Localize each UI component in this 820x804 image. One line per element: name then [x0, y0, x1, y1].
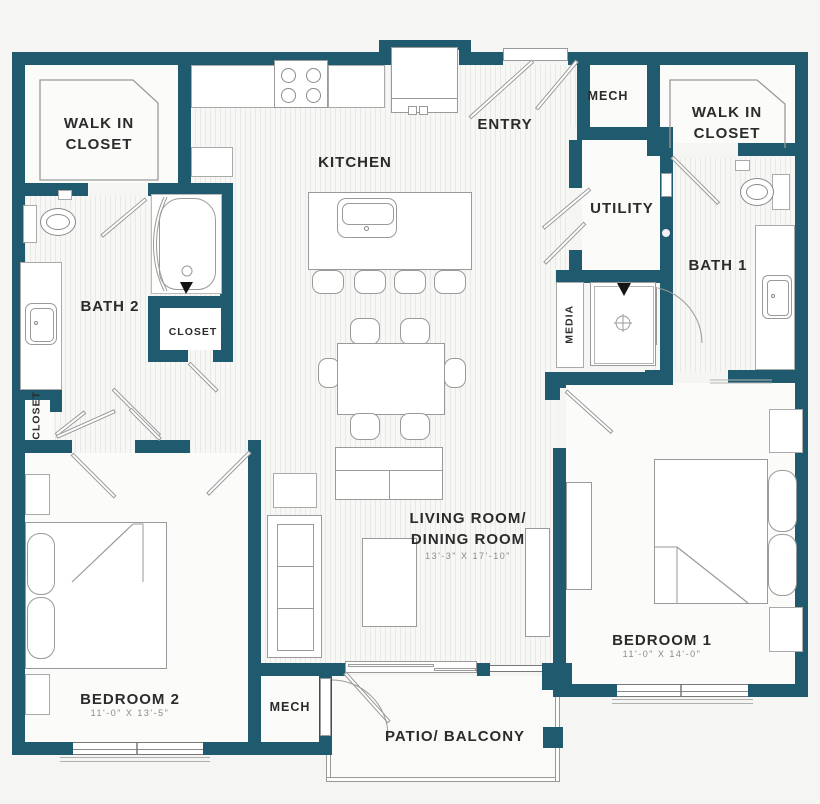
- pillow-icon: [27, 597, 55, 659]
- wall-segment: [471, 52, 503, 65]
- toilet-paper-icon: [58, 190, 72, 200]
- wall-segment: [728, 370, 795, 383]
- window-sill-bedroom1: [612, 699, 753, 704]
- wall-segment: [647, 143, 672, 156]
- sliding-door-patio: [345, 661, 477, 673]
- label-walk-in-closet-left: WALK IN CLOSET: [29, 113, 169, 155]
- wall-segment: [569, 140, 582, 188]
- sofa: [267, 515, 322, 658]
- entry-door: [503, 48, 568, 61]
- wall-segment: [50, 398, 62, 412]
- label-utility: UTILITY: [561, 198, 683, 219]
- dimension-bedroom1: 11'-0" X 14'-0": [592, 649, 732, 659]
- label-bedroom1: BEDROOM 1: [592, 630, 732, 651]
- dining-chair: [400, 318, 430, 345]
- bath1-sink-icon: [762, 275, 792, 319]
- patio-railing-bottom: [326, 777, 560, 782]
- wall-segment: [553, 684, 617, 697]
- window-bedroom1: [617, 684, 748, 697]
- label-bedroom2: BEDROOM 2: [60, 689, 200, 710]
- kitchen-counter: [328, 65, 385, 108]
- bar-stool: [434, 270, 466, 294]
- wall-segment: [203, 742, 332, 755]
- bed: [654, 459, 768, 604]
- nightstand: [769, 607, 803, 652]
- loveseat: [335, 447, 443, 500]
- toilet-bowl-icon: [740, 178, 774, 206]
- wall-segment: [645, 370, 667, 383]
- pillow-icon: [768, 534, 797, 596]
- label-closet-hall: CLOSET: [153, 325, 233, 340]
- toilet-bowl-icon: [40, 208, 76, 236]
- label-bath2: BATH 2: [50, 296, 170, 317]
- pillow-icon: [768, 470, 797, 532]
- wall-segment: [12, 52, 25, 755]
- stove-icon: [274, 60, 328, 108]
- dresser: [566, 482, 592, 590]
- wall-segment: [459, 40, 471, 65]
- toilet-tank-icon: [23, 205, 37, 243]
- wall-segment: [477, 663, 490, 676]
- dining-table: [337, 343, 445, 415]
- wall-segment: [135, 440, 190, 453]
- wall-segment: [748, 684, 808, 697]
- label-walk-in-closet-right: WALK IN CLOSET: [657, 102, 797, 144]
- dimension-living-dining: 13'-3" X 17'-10": [388, 551, 548, 561]
- dining-chair: [350, 318, 380, 345]
- window-sill-bedroom2: [60, 757, 210, 762]
- window-bedroom2: [73, 742, 203, 755]
- label-kitchen: KITCHEN: [285, 152, 425, 173]
- label-entry: ENTRY: [445, 114, 565, 135]
- wall-segment: [12, 742, 73, 755]
- kitchen-counter: [191, 65, 275, 108]
- side-table: [273, 473, 317, 508]
- label-media: MEDIA: [563, 294, 578, 354]
- wall-segment: [795, 52, 808, 697]
- bar-stool: [312, 270, 344, 294]
- nightstand: [25, 474, 50, 515]
- toilet-paper-icon: [735, 160, 750, 171]
- bathtub-icon: [151, 194, 222, 294]
- island-sink-icon: [337, 198, 397, 238]
- label-bath1: BATH 1: [658, 255, 778, 276]
- dimension-bedroom2: 11'-0" X 13'-5": [60, 708, 200, 718]
- label-closet-left: CLOSET: [30, 385, 45, 445]
- patio-post: [543, 727, 563, 748]
- wall-segment: [738, 143, 795, 156]
- label-mech-top: MECH: [570, 88, 646, 106]
- nightstand: [769, 409, 803, 453]
- label-living-dining: LIVING ROOM/ DINING ROOM: [388, 508, 548, 550]
- wall-segment: [553, 372, 566, 388]
- wall-segment: [12, 183, 88, 196]
- label-patio: PATIO/ BALCONY: [375, 726, 535, 747]
- pillow-icon: [27, 533, 55, 595]
- kitchen-cabinet: [191, 147, 233, 177]
- wall-segment: [148, 350, 188, 362]
- wall-segment: [553, 448, 566, 684]
- wall-segment: [577, 127, 660, 140]
- floor-plan: WALK IN CLOSET KITCHEN ENTRY MECH WALK I…: [0, 0, 820, 804]
- dining-chair: [400, 413, 430, 440]
- wall-segment: [568, 52, 808, 65]
- bar-stool: [394, 270, 426, 294]
- utility-pocket-door: [661, 173, 672, 197]
- toilet-tank-icon: [772, 174, 790, 210]
- wall-segment: [178, 52, 191, 196]
- nightstand: [25, 674, 50, 715]
- dining-chair: [350, 413, 380, 440]
- shower: [590, 282, 656, 366]
- dining-chair: [444, 358, 466, 388]
- fridge-icon: [391, 47, 458, 113]
- window-living: [490, 665, 542, 672]
- bar-stool: [354, 270, 386, 294]
- label-mech-bottom: MECH: [252, 699, 328, 717]
